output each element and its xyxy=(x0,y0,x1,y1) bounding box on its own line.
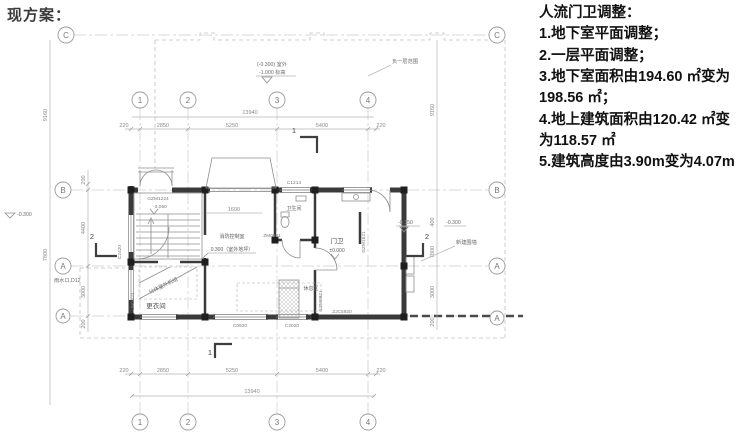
code-GZM1621: GZM1621 xyxy=(361,231,367,253)
dim: 220 xyxy=(119,123,128,129)
dim: 5400 xyxy=(316,368,328,374)
dim: 220 xyxy=(376,368,385,374)
axis-B: B xyxy=(60,186,65,195)
door-swing-ZM0921 xyxy=(282,240,300,258)
dim: 5250 xyxy=(226,123,238,129)
dim: 200 xyxy=(81,175,87,184)
window-C1214 xyxy=(280,188,312,193)
room-bath: 卫生间 xyxy=(286,205,301,212)
outdoor-note-line1: (-0.300) 室外 xyxy=(257,60,287,68)
window-C0920 xyxy=(213,315,268,320)
code-C2020: C2020 xyxy=(285,323,299,329)
code-C2420: C2420 xyxy=(117,245,123,259)
dim-1600: 1600 xyxy=(228,207,240,213)
dim: 2850 xyxy=(157,368,169,374)
dim: 200 xyxy=(81,319,87,328)
section-1-label: 1 xyxy=(292,126,296,135)
stair-level: -3.050 xyxy=(153,204,167,210)
axis-A: A xyxy=(494,262,500,271)
code-GZM1224: GZM1224 xyxy=(147,196,169,202)
axis-3: 3 xyxy=(275,418,280,427)
axis-3: 3 xyxy=(275,96,280,105)
basement-outline xyxy=(80,33,523,338)
window-bottom-left xyxy=(140,315,178,320)
dimensions: 13940 220 2850 5250 5400 220 220 2850 52… xyxy=(43,40,437,405)
code-GZM0821: GZM0821 xyxy=(318,290,324,312)
axis-C: C xyxy=(63,31,69,40)
code-ZJC5920: ZJC5920 xyxy=(332,309,352,315)
dim-total-top: 13940 xyxy=(242,110,257,116)
gate-level: ±0.000 xyxy=(329,248,344,254)
room-change: 更衣间 xyxy=(146,301,166,310)
entry-canopy xyxy=(206,158,276,188)
dim-total-bottom: 13940 xyxy=(244,389,259,395)
window-C2420 xyxy=(129,215,134,252)
axis-A2: A xyxy=(494,314,500,323)
section-2-label: 2 xyxy=(425,232,429,241)
dim: 2850 xyxy=(157,123,169,129)
dim: 220 xyxy=(119,368,128,374)
staircase xyxy=(134,168,202,259)
dim: 3000 xyxy=(81,286,87,298)
room-rest: 休息区 xyxy=(303,285,318,292)
center-level: 0.300（室外地坪） xyxy=(211,246,254,253)
section-marks: 1 1 2 2 xyxy=(90,126,429,358)
dim: 3000 xyxy=(430,286,436,298)
axis-1: 1 xyxy=(138,96,143,105)
code-ZM0921: ZM0921 xyxy=(263,233,281,239)
dim: 9160 xyxy=(430,104,436,116)
fence-note: 新建围墙 xyxy=(456,238,477,246)
axis-1: 1 xyxy=(138,418,143,427)
page: 现方案： 人流门卫调整： 1.地下室平面调整； 2.一层平面调整； 3.地下室面… xyxy=(0,0,741,437)
axis-A: A xyxy=(60,262,66,271)
code-C0920: C0920 xyxy=(233,323,247,329)
code-C1214: C1214 xyxy=(287,180,301,186)
dim: 200 xyxy=(430,317,436,326)
dim: 220 xyxy=(376,123,385,129)
dim: 5400 xyxy=(316,123,328,129)
right-level-2: -0.300 xyxy=(446,220,461,226)
dim: 4400 xyxy=(81,222,87,234)
dim: 9160 xyxy=(43,109,49,121)
axis-C: C xyxy=(494,31,500,40)
axis-A2: A xyxy=(60,312,66,321)
section-1-label: 1 xyxy=(208,348,212,357)
section-2-label: 2 xyxy=(90,232,94,241)
left-level: -0.300 xyxy=(17,212,32,218)
axis-B: B xyxy=(494,186,499,195)
room-control: 消防控制室 xyxy=(219,233,244,240)
right-level-1: -0.150 xyxy=(398,220,413,226)
window-top-right xyxy=(342,188,372,193)
axis-2: 2 xyxy=(186,418,191,427)
room-gate: 门卫 xyxy=(331,236,345,245)
fence-post xyxy=(406,276,414,292)
floor-plan-drawing: 13940 220 2850 5250 5400 220 220 2850 52… xyxy=(0,0,741,437)
axis-4: 4 xyxy=(366,96,371,105)
code-JM1524: JM1524 xyxy=(130,292,136,309)
basement-extent-note: 负一层范围 xyxy=(392,57,418,65)
entry-door-swing xyxy=(368,190,390,212)
axis-2: 2 xyxy=(186,96,191,105)
dim: 7800 xyxy=(43,249,49,261)
dim: 5250 xyxy=(226,368,238,374)
walls xyxy=(128,186,415,321)
outdoor-note-line2: -1.000 标高 xyxy=(259,68,286,76)
dim: 400 xyxy=(430,217,436,226)
ac-unit-note: 分体室外机组 xyxy=(147,275,178,296)
rain-outlet-note: 雨水口,D12 xyxy=(54,276,81,284)
axis-4: 4 xyxy=(366,418,371,427)
rest-bed xyxy=(279,280,299,318)
